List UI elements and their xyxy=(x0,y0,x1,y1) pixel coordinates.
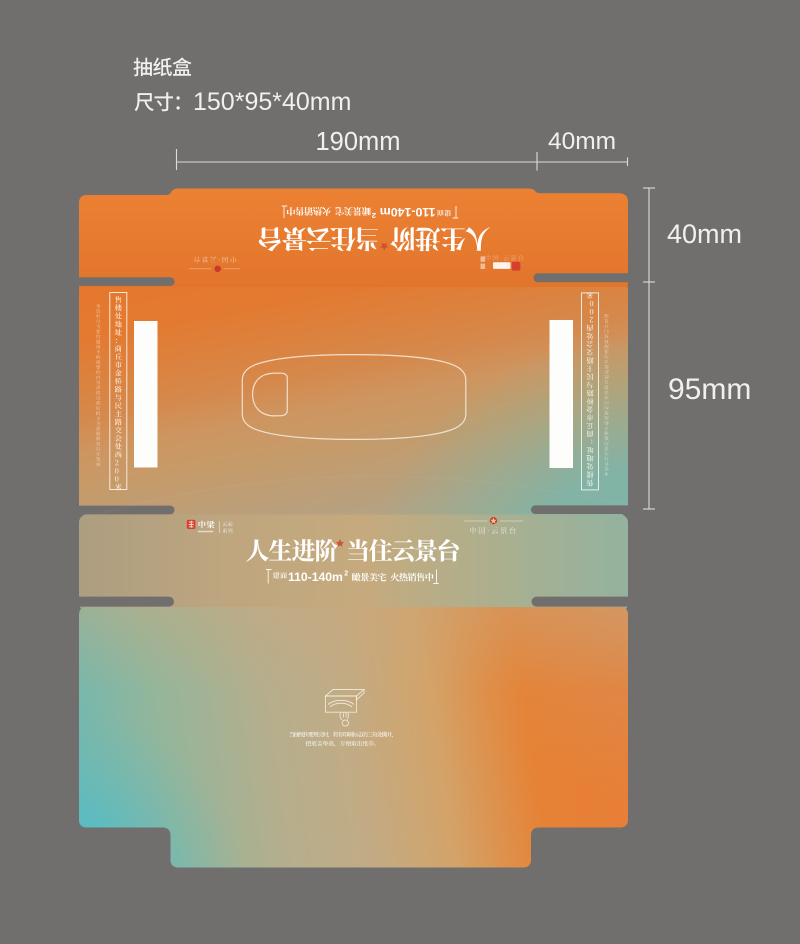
svg-text:110-140m: 110-140m xyxy=(380,205,436,219)
svg-text:40mm: 40mm xyxy=(548,128,616,155)
svg-text:190mm: 190mm xyxy=(315,128,400,156)
svg-text:110-140m: 110-140m xyxy=(288,570,343,584)
svg-text:40mm: 40mm xyxy=(667,219,742,249)
svg-text:2: 2 xyxy=(372,211,376,220)
svg-text:95mm: 95mm xyxy=(668,373,751,406)
svg-text:2: 2 xyxy=(344,571,348,578)
svg-text:150*95*40mm: 150*95*40mm xyxy=(193,88,351,116)
